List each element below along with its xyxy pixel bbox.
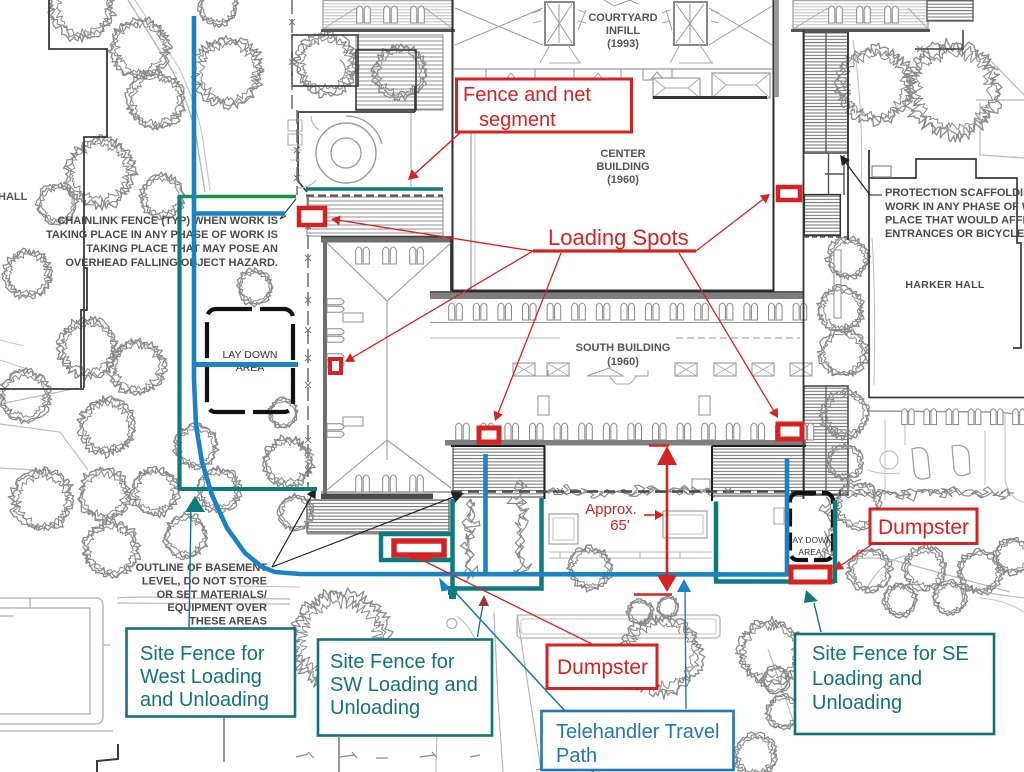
svg-text:OVERHEAD FALLING OBJECT HAZARD: OVERHEAD FALLING OBJECT HAZARD. <box>65 257 278 269</box>
svg-text:Unloading: Unloading <box>812 692 902 714</box>
svg-text:SOUTH BUILDING: SOUTH BUILDING <box>576 342 671 354</box>
svg-text:Loading and: Loading and <box>812 668 922 690</box>
svg-text:TAKING PLACE IN ANY PHASE OF W: TAKING PLACE IN ANY PHASE OF WORK IS <box>46 229 278 241</box>
svg-text:Approx.: Approx. <box>585 501 637 518</box>
svg-text:CENTER: CENTER <box>600 148 645 160</box>
svg-text:West Loading: West Loading <box>140 666 262 688</box>
svg-text:OUTLINE OF BASEMENT: OUTLINE OF BASEMENT <box>136 562 268 574</box>
svg-text:ENTRANCES OR BICYCLE: ENTRANCES OR BICYCLE <box>885 228 1024 240</box>
svg-text:Loading Spots: Loading Spots <box>548 225 689 250</box>
svg-text:HALL: HALL <box>0 191 28 203</box>
svg-text:SW Loading and: SW Loading and <box>330 674 478 696</box>
svg-text:segment: segment <box>479 109 556 131</box>
svg-text:LAY DOWN: LAY DOWN <box>788 535 833 545</box>
svg-text:PLACE THAT WOULD AFFE: PLACE THAT WOULD AFFE <box>885 215 1024 227</box>
svg-text:Dumpster: Dumpster <box>557 656 648 679</box>
svg-text:BUILDING: BUILDING <box>596 161 649 173</box>
svg-text:WORK IN ANY PHASE OF W: WORK IN ANY PHASE OF W <box>885 201 1024 213</box>
svg-text:PROTECTION SCAFFOLDIN: PROTECTION SCAFFOLDIN <box>885 187 1024 199</box>
svg-text:Site Fence for: Site Fence for <box>330 651 455 673</box>
svg-text:OR SET MATERIALS/: OR SET MATERIALS/ <box>157 589 267 601</box>
svg-text:Fence and net: Fence and net <box>463 84 591 106</box>
svg-text:AREA: AREA <box>798 547 821 557</box>
svg-text:HARKER HALL: HARKER HALL <box>905 279 984 291</box>
svg-text:Unloading: Unloading <box>330 697 420 719</box>
svg-text:Path: Path <box>556 745 597 767</box>
svg-text:(1993): (1993) <box>607 38 639 50</box>
svg-text:Telehandler Travel: Telehandler Travel <box>556 721 719 743</box>
svg-text:Site Fence for SE: Site Fence for SE <box>812 643 969 665</box>
svg-text:LAY DOWN: LAY DOWN <box>222 349 277 361</box>
svg-text:EQUIPMENT OVER: EQUIPMENT OVER <box>167 602 267 614</box>
svg-text:(1960): (1960) <box>607 356 639 368</box>
svg-text:and Unloading: and Unloading <box>140 689 269 711</box>
svg-text:(1960): (1960) <box>607 174 639 186</box>
svg-text:COURTYARD: COURTYARD <box>588 12 657 24</box>
svg-text:65': 65' <box>610 517 630 534</box>
svg-text:INFILL: INFILL <box>606 25 640 37</box>
svg-text:Site Fence for: Site Fence for <box>140 643 265 665</box>
svg-text:TAKING PLACE THAT MAY POSE AN: TAKING PLACE THAT MAY POSE AN <box>86 243 278 255</box>
svg-text:CHAINLINK FENCE (TYP) WHEN WO: CHAINLINK FENCE (TYP) WHEN WORK IS <box>57 215 278 227</box>
svg-text:THESE AREAS: THESE AREAS <box>189 616 267 628</box>
svg-text:LEVEL, DO NOT STORE: LEVEL, DO NOT STORE <box>142 576 267 588</box>
svg-text:Dumpster: Dumpster <box>878 516 969 539</box>
